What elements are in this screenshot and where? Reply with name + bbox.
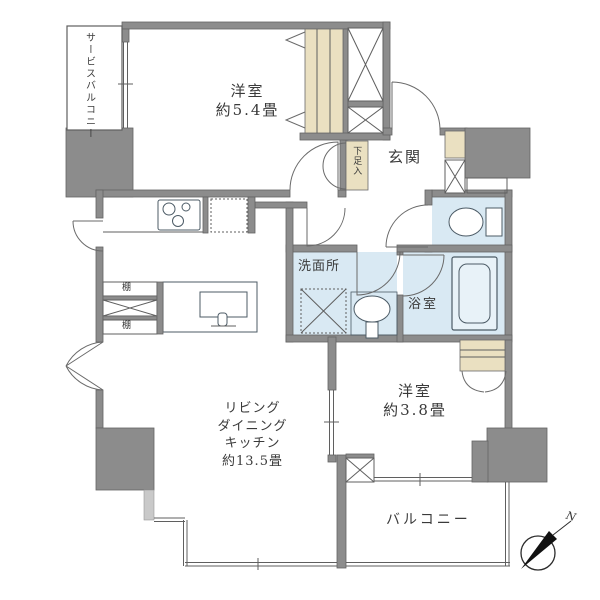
toilet-tank [486,208,502,236]
ldk-line2: ダイニング [185,418,320,436]
shelf-unit [103,282,163,334]
casement-window-double [66,342,103,390]
washroom-label: 洗面所 [298,259,340,275]
shoe-box-label: 下足入 [350,146,361,176]
ldk-label: リビング ダイニング キッチン 約13.5畳 [185,400,320,470]
shelf-bottom-label: 棚 [122,321,131,332]
living-door [307,208,345,246]
bifold-door-arc [485,371,506,392]
faucet-icon [218,313,227,326]
refrigerator-space [211,199,247,232]
bedroom2-name: 洋室 [355,382,475,401]
bedroom1-label: 洋室 約5.4畳 [175,82,320,120]
kitchen [103,199,257,334]
step-block [144,490,154,520]
service-balcony-label: サービスバルコニー [82,32,95,140]
genkan-label: 玄関 [388,148,422,167]
bathroom-label: 浴室 [408,297,438,313]
bedroom2-closet [460,340,505,371]
ldk-line1: リビング [185,400,320,418]
bedroom2-label: 洋室 約3.8畳 [355,382,475,420]
bedroom1-name: 洋室 [175,82,320,101]
shelf-top-label: 棚 [122,283,131,294]
toilet-bowl [449,208,483,236]
bedroom2-size: 約3.8畳 [355,401,475,420]
casement-window-single [73,221,103,251]
closet-door-arrow [286,32,305,48]
ldk-line3: キッチン [185,435,320,453]
pillar-blocks [96,428,547,520]
pillar-right [487,428,547,482]
pillar-right-step [472,441,488,482]
entrance-cabinet [445,131,465,158]
compass [521,521,571,570]
vanity-pedestal [366,322,378,338]
kitchen-island [163,282,257,332]
entrance-door [392,82,440,130]
bedroom1-size: 約5.4畳 [175,101,320,120]
toilet-door [386,205,428,247]
vanity-basin [354,296,390,322]
pillar-left [96,428,154,490]
balcony-label: バルコニー [386,512,471,530]
ldk-size: 約13.5畳 [185,453,320,471]
floor-plan: サービスバルコニー 洋室 約5.4畳 下足入 玄関 洗面所 浴室 棚 棚 リビン… [0,0,600,600]
